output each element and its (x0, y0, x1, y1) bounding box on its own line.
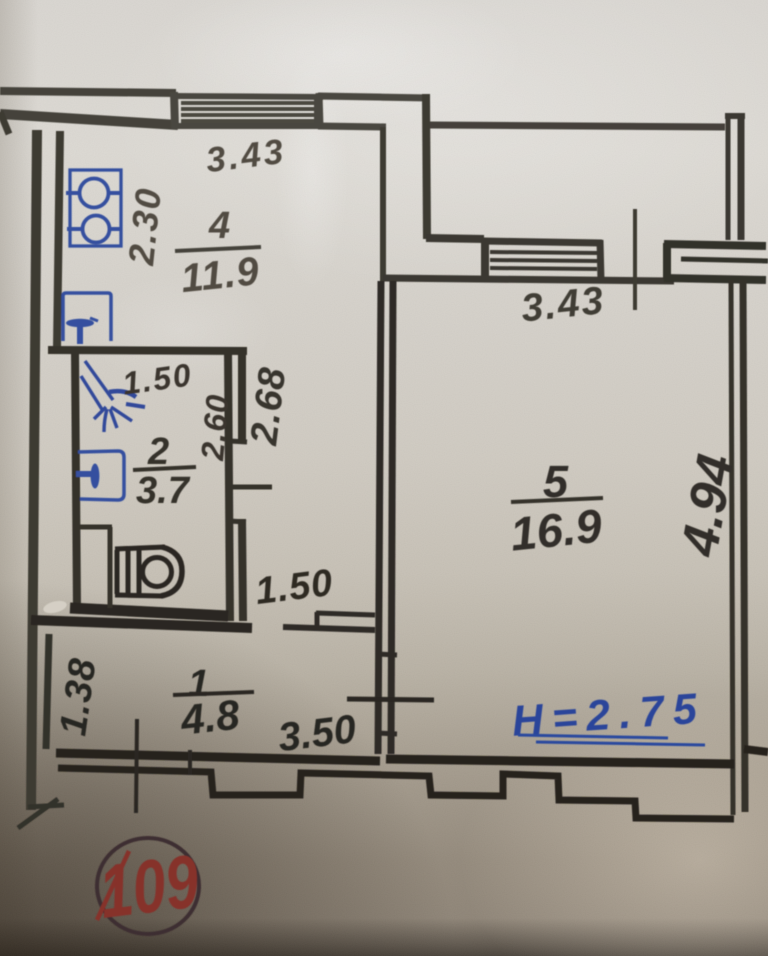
svg-text:2.60: 2.60 (194, 392, 236, 462)
svg-text:11.9: 11.9 (179, 249, 262, 301)
svg-text:3.43: 3.43 (519, 279, 607, 331)
svg-text:4: 4 (208, 205, 230, 247)
svg-text:3.7: 3.7 (136, 470, 191, 512)
svg-text:3.50: 3.50 (276, 707, 359, 760)
svg-text:2.30: 2.30 (120, 185, 169, 268)
svg-text:16.9: 16.9 (508, 498, 605, 560)
svg-text:4.8: 4.8 (178, 691, 243, 744)
